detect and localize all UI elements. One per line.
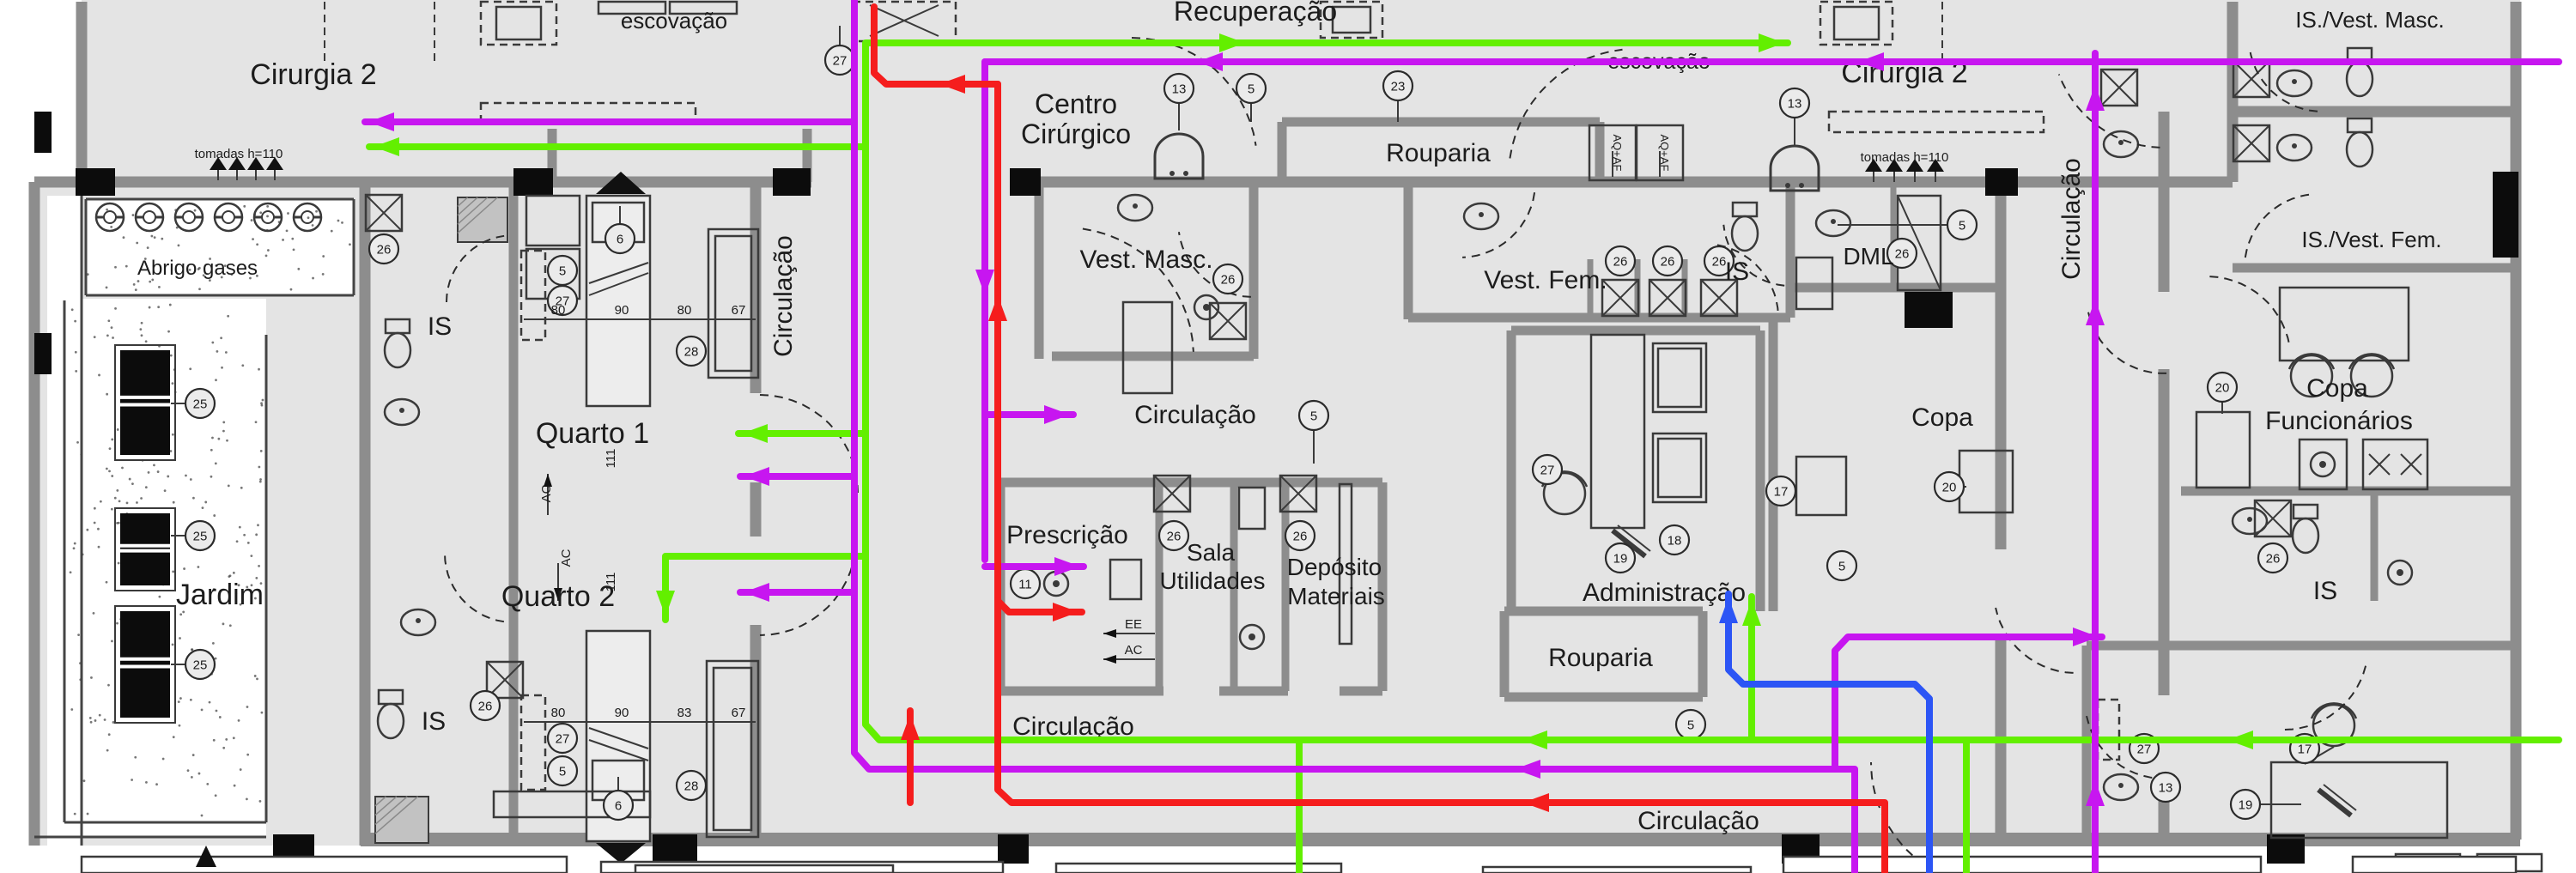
stipple-dot [111,475,113,477]
stipple-dot [222,747,225,749]
stipple-dot [209,701,211,704]
room-label: Jardim [176,579,264,611]
equipment-tag-number: 25 [193,530,208,544]
equipment-tag-number: 5 [559,765,566,779]
stipple-dot [106,334,109,336]
stipple-dot [258,565,260,567]
stipple-dot [133,283,136,286]
furniture-rect [82,857,567,873]
stipple-dot [239,526,241,529]
stipple-dot [94,336,96,338]
sink-tap [2118,140,2123,145]
stipple-dot [147,246,149,249]
room-label: IS./Vest. Masc. [2295,7,2444,33]
stipple-dot [255,421,258,423]
drain-dot [1203,304,1210,311]
equipment-tag-number: 19 [2239,798,2253,813]
stipple-dot [212,642,215,645]
stipple-dot [236,540,239,543]
stipple-dot [258,466,260,469]
stipple-dot [215,794,217,797]
scrub-tap [1799,183,1804,188]
equipment-tag-number: 17 [1774,485,1789,500]
equipment-tag-number: 23 [1391,80,1406,94]
stipple-dot [112,336,114,339]
stipple-dot [349,243,351,246]
equipment-tag-number: 5 [1959,219,1965,233]
room-label: escovação [621,8,727,33]
room-label: Centro [1035,88,1117,119]
stipple-dot [109,447,112,450]
stipple-dot [114,266,117,269]
stipple-dot [221,367,223,369]
stipple-dot [74,543,76,545]
stipple-dot [322,273,325,276]
stipple-dot [135,288,137,291]
equipment-tag-number: 26 [1613,255,1628,270]
wall-block [653,834,697,864]
stipple-dot [238,719,240,722]
stipple-dot [210,449,213,452]
stipple-dot [243,534,246,537]
furniture-rect [1483,867,1751,873]
room-label: Quarto 1 [536,417,649,450]
sink-tap [2292,143,2297,149]
wall-block [998,834,1029,864]
equipment-tag-number: 18 [1668,534,1682,549]
stipple-dot [71,308,74,311]
room-label: Vest. Fem. [1484,266,1607,294]
stipple-dot [211,437,214,440]
stipple-dot [206,783,209,785]
wall-block [1905,292,1953,328]
stipple-dot [191,648,193,651]
room-label: DML [1843,243,1893,270]
stipple-dot [246,706,249,708]
annotation-text: tomadas h=110 [1861,150,1949,165]
stipple-dot [286,230,289,233]
room-label: Rouparia [1386,139,1491,167]
annotation-text: 83 [677,706,692,720]
equipment-tag-number: 6 [617,233,623,247]
stipple-dot [246,754,249,756]
stipple-dot [229,624,232,627]
stipple-dot [265,254,268,257]
annotation-text: 67 [732,303,746,318]
stipple-dot [118,562,120,565]
furniture-rect [2353,857,2516,873]
stipple-dot [266,215,269,217]
scrub-tap [1183,171,1188,176]
stipple-dot [234,785,236,787]
stipple-dot [267,249,270,252]
stipple-dot [202,506,204,509]
annotation-text: tomadas h=110 [195,147,283,161]
stipple-dot [262,399,264,402]
stipple-dot [216,710,218,712]
stipple-dot [240,768,242,771]
room-label: Cirúrgico [1021,118,1131,149]
stipple-dot [261,404,264,407]
stipple-dot [201,708,204,711]
stipple-dot [183,567,185,570]
stipple-dot [217,438,220,440]
room-label: Funcionários [2265,407,2413,435]
stipple-dot [260,450,263,452]
stipple-dot [154,236,156,239]
stipple-dot [170,355,173,357]
stipple-dot [189,367,191,370]
annotation-text: AC [1125,643,1143,658]
floor-plan-svg: 2713523132665272826275628265112626262626… [0,0,2576,873]
wall-block [34,112,52,153]
stipple-dot [111,508,113,511]
stipple-dot [291,238,294,240]
stipple-dot [255,533,258,536]
stipple-dot [290,288,293,291]
equipment-tag-number: 26 [478,700,493,714]
equipment-tag-number: 26 [1167,530,1182,544]
annotation-text: AC [539,484,554,502]
stipple-dot [201,815,204,817]
stipple-dot [216,350,218,353]
room-label: IS [1725,258,1749,286]
equipment-tag-number: 13 [1172,82,1187,97]
wall-block [773,168,811,196]
equipment-tag-number: 17 [2298,743,2312,757]
scrub-tap [1170,171,1175,176]
stipple-dot [257,524,259,526]
stipple-dot [76,441,79,444]
stipple-dot [98,374,100,377]
drain-dot [1053,580,1060,587]
annotation-text: EE [1125,617,1142,632]
stipple-dot [167,330,170,333]
stipple-dot [110,226,112,228]
stipple-dot [100,500,102,503]
stipple-dot [259,481,262,483]
stipple-dot [260,402,263,404]
stipple-dot [282,239,284,241]
stipple-dot [331,230,333,233]
stipple-dot [162,758,165,761]
stipple-dot [131,779,133,781]
stipple-dot [123,236,125,239]
stipple-dot [307,216,310,219]
stipple-dot [258,368,260,371]
room-label: IS./Vest. Fem. [2301,227,2441,252]
stipple-dot [157,470,160,473]
equipment-tag-number: 11 [1018,578,1032,592]
stipple-dot [178,244,180,246]
stipple-dot [134,756,137,759]
annotation-text: 80 [551,303,566,318]
drain-dot [2397,569,2403,576]
stipple-dot [167,476,169,478]
stipple-dot [259,800,262,803]
stipple-dot [107,319,110,322]
sink-tap [399,408,404,413]
stipple-dot [150,235,153,238]
stipple-dot [179,697,182,700]
stipple-dot [172,382,174,385]
equipment-tag-number: 6 [615,799,622,814]
stipple-dot [70,708,73,711]
stipple-dot [111,326,113,329]
equipment-tag-number: 5 [1687,718,1694,733]
stipple-dot [111,439,113,441]
stipple-dot [227,315,229,318]
stipple-dot [226,440,228,442]
stipple-dot [94,522,96,524]
stipple-dot [169,304,172,306]
stipple-dot [187,769,190,772]
stipple-dot [145,486,148,488]
stipple-dot [116,522,118,524]
stipple-dot [106,581,108,584]
stipple-dot [137,280,140,282]
stipple-dot [125,265,128,268]
gas-cylinder [120,611,170,718]
stipple-dot [192,497,195,500]
stipple-dot [222,421,225,423]
stipple-dot [172,571,174,573]
stipple-dot [112,721,115,724]
stipple-dot [155,783,158,785]
stipple-dot [136,501,138,504]
stipple-dot [141,322,143,324]
stipple-dot [121,467,124,470]
stipple-dot [148,471,150,474]
stipple-dot [145,781,148,784]
wall-block [1985,168,2018,196]
stipple-dot [251,219,253,221]
stipple-dot [246,798,248,801]
stipple-dot [254,675,257,677]
stipple-dot [259,211,262,214]
stipple-dot [141,334,143,336]
annotation-text: AC [559,549,574,567]
stipple-dot [228,575,230,578]
room-label: Depósito [1287,554,1382,580]
stipple-dot [93,612,95,615]
annotation-text: 111 [604,449,618,469]
room-label: Abrigo gases [137,257,258,280]
stipple-dot [190,478,192,481]
scrub-tap [1785,183,1790,188]
stipple-dot [250,555,252,557]
stipple-dot [86,529,88,531]
room-label: Utilidades [1160,567,1266,594]
equipment-tag-number: 5 [1310,409,1317,424]
stipple-dot [90,676,93,679]
room-label: Circulação [1134,401,1256,429]
stipple-dot [240,487,243,489]
wall-block [2493,172,2518,258]
stipple-dot [252,238,254,240]
stipple-dot [173,736,175,738]
ac-unit [458,197,507,242]
floor-plan-stage: 2713523132665272826275628265112626262626… [0,0,2576,873]
annotation-text: 80 [677,303,692,318]
sink-tap [2118,783,2123,788]
stipple-dot [198,773,201,775]
stipple-dot [74,813,76,815]
room-label: Copa [1911,403,1973,432]
stipple-dot [106,468,108,470]
stipple-dot [259,478,262,481]
stipple-dot [222,622,225,625]
stipple-dot [341,221,343,224]
stipple-dot [75,351,77,354]
stipple-dot [158,596,161,598]
ac-unit [375,797,428,843]
equipment-tag-number: 27 [833,54,848,69]
stipple-dot [131,482,134,485]
sink-tap [416,618,421,623]
annotation-text: 90 [615,303,629,318]
stipple-dot [116,622,118,625]
stipple-dot [132,214,135,216]
wall-block [513,168,553,196]
stipple-dot [94,719,97,722]
annotation-text: 80 [551,706,566,720]
stipple-dot [90,721,93,724]
stipple-dot [179,613,182,615]
stipple-dot [190,699,192,701]
stipple-dot [153,464,155,467]
equipment-tag-number: 5 [559,264,566,279]
stipple-dot [108,470,111,473]
stipple-dot [215,462,217,464]
stipple-dot [312,277,314,280]
stipple-dot [116,489,118,492]
sink-tap [1479,212,1484,217]
stipple-dot [266,205,269,208]
room-label: IS [428,312,452,341]
stipple-dot [108,733,111,736]
stipple-dot [75,370,77,373]
equipment-tag-number: 20 [2215,381,2230,396]
room-label: Circulação [2057,158,2086,280]
annotation-text: AQ+AF [1611,135,1624,172]
stipple-dot [225,351,228,354]
sink-tap [2247,517,2252,522]
equipment-tag-number: 26 [377,243,392,258]
room-label: Circulação [769,235,798,357]
stipple-dot [87,813,89,815]
equipment-tag-number: 27 [556,732,570,747]
abrigo-floor [86,199,354,295]
stipple-dot [222,430,225,433]
stipple-dot [158,286,161,288]
stipple-dot [185,475,187,477]
stipple-dot [136,242,138,245]
equipment-tag-number: 26 [2266,552,2281,567]
stipple-dot [118,500,121,502]
stipple-dot [211,342,214,344]
stipple-dot [215,379,217,381]
annotation-text: 111 [604,573,618,592]
room-label: Recuperação [1174,0,1337,27]
equipment-tag-number: 20 [1942,481,1957,495]
equipment-tag-number: 26 [1293,530,1308,544]
equipment-tag-number: 27 [1540,464,1555,478]
stipple-dot [297,268,300,270]
wall-block [76,168,115,196]
stipple-dot [225,738,228,741]
stipple-dot [178,700,180,703]
stipple-dot [97,528,100,530]
sink-tap [2292,79,2297,84]
stipple-dot [139,328,142,330]
stipple-dot [315,210,318,213]
stipple-dot [77,634,80,636]
stipple-dot [337,220,340,222]
stipple-dot [140,497,143,500]
equipment-tag-number: 25 [193,658,208,673]
stipple-dot [198,288,201,290]
stipple-dot [194,209,197,212]
annotation-text: 67 [732,706,746,720]
stipple-dot [261,712,264,714]
stipple-dot [114,497,117,500]
stipple-dot [233,737,235,739]
equipment-tag-number: 28 [684,779,699,794]
drain-dot [2319,461,2326,468]
stipple-dot [191,776,193,779]
stipple-dot [173,501,175,504]
room-label: Administração [1583,579,1746,607]
stipple-dot [129,478,131,481]
stipple-dot [107,684,110,687]
equipment-tag-number: 26 [1221,273,1236,288]
stipple-dot [104,718,106,721]
stipple-dot [213,514,216,517]
wall-block [1010,168,1041,196]
stipple-dot [106,749,109,752]
stipple-dot [157,306,160,308]
stipple-dot [197,566,200,568]
stipple-dot [312,224,314,227]
stipple-dot [117,428,119,431]
stipple-dot [247,542,250,544]
stipple-dot [172,643,174,646]
equipment-tag-number: 26 [1895,247,1910,262]
room-label: Quarto 2 [501,580,615,613]
stipple-dot [219,716,222,718]
equipment-tag-number: 27 [2137,743,2152,757]
gas-cylinder [120,350,170,455]
sink-tap [1831,219,1836,224]
room-label: Vest. Masc. [1079,246,1212,274]
equipment-tag-number: 5 [1838,560,1845,574]
stipple-dot [241,364,244,367]
equipment-tag-number: 25 [193,397,208,412]
stipple-dot [145,340,148,343]
room-label: Cirurgia 2 [250,58,376,91]
stipple-dot [149,306,151,309]
stipple-dot [213,739,216,742]
stipple-dot [179,724,181,727]
stipple-dot [243,205,246,208]
equipment-tag-number: 13 [1788,97,1802,112]
room-label: Prescrição [1006,521,1128,549]
stipple-dot [179,637,181,640]
stipple-dot [220,336,222,339]
stipple-dot [256,243,258,246]
room-label: IS [2313,577,2337,605]
